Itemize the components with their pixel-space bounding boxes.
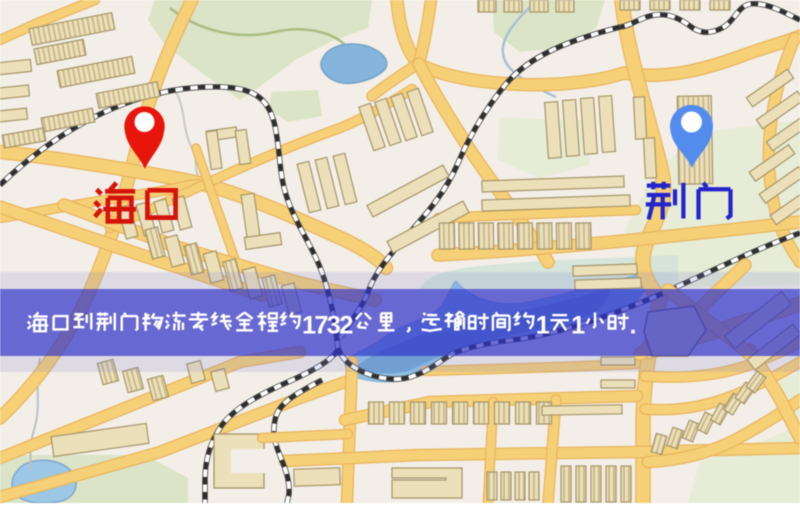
svg-text:2: 2	[339, 312, 353, 340]
svg-text:.: .	[630, 312, 637, 340]
svg-text:1: 1	[571, 312, 585, 340]
svg-text:1: 1	[536, 312, 550, 340]
